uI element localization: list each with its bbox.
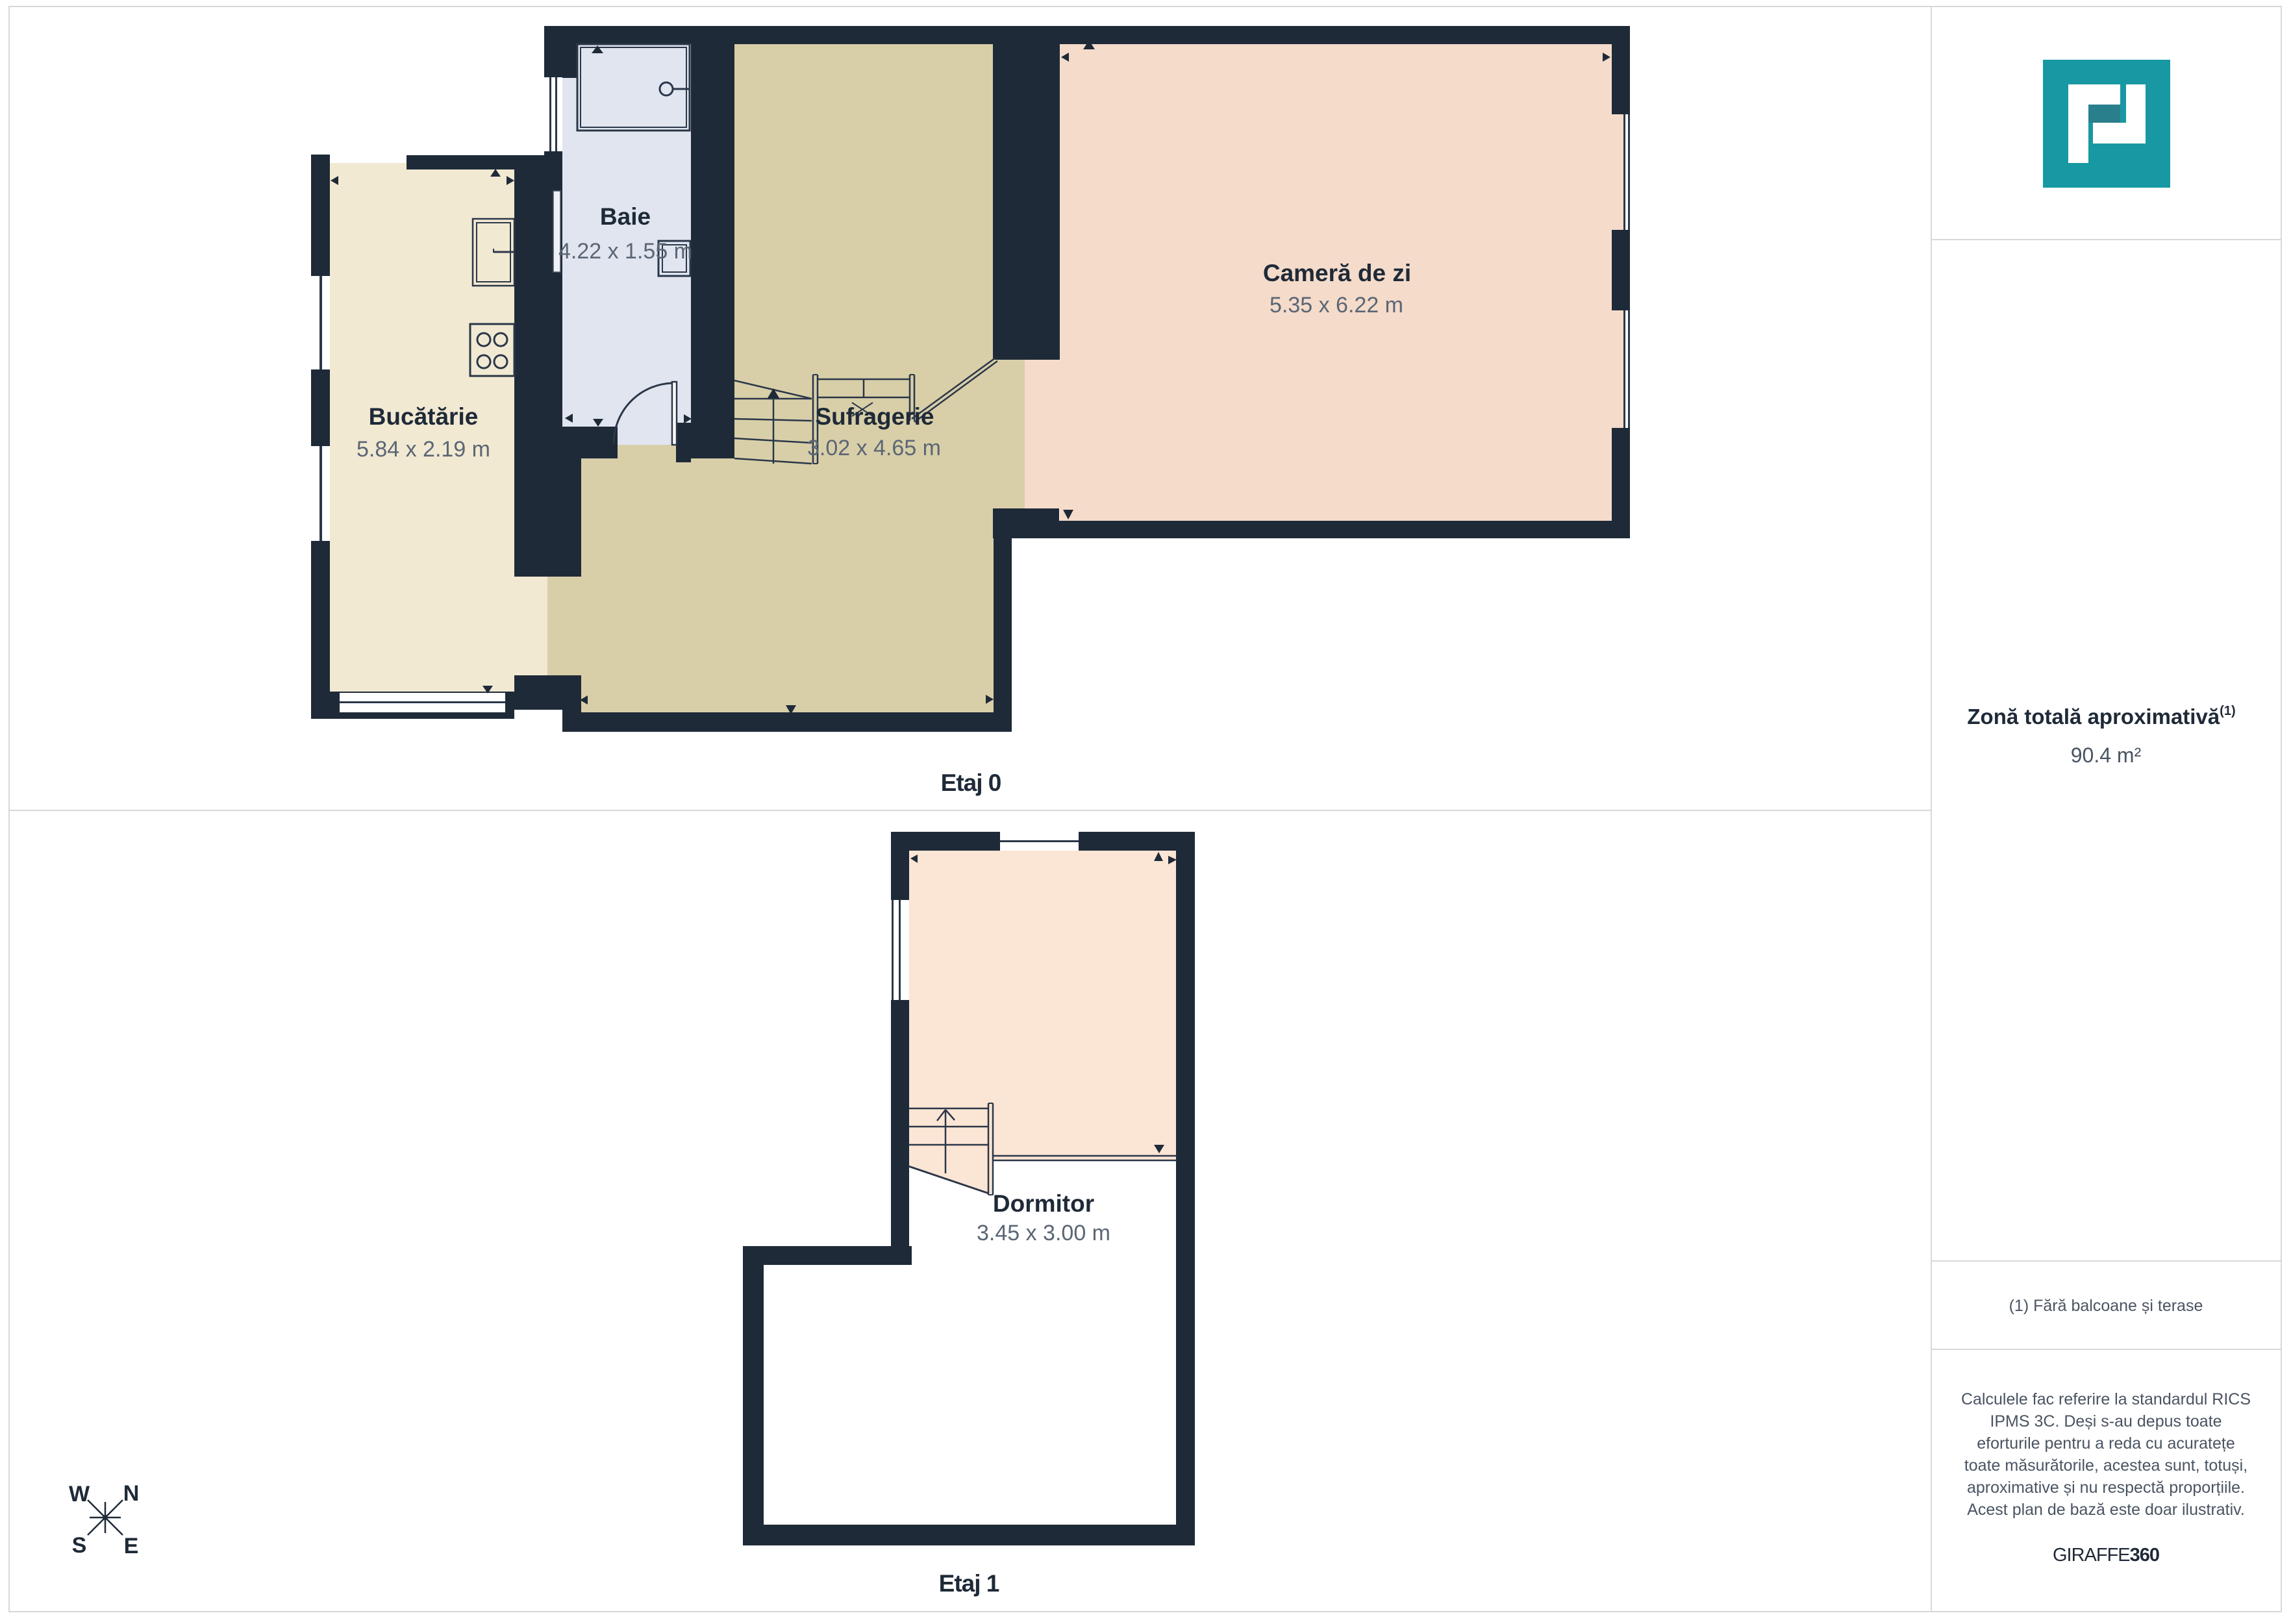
svg-text:Etaj 0: Etaj 0 [941, 769, 1001, 796]
svg-text:4.22 x 1.55 m: 4.22 x 1.55 m [558, 239, 692, 264]
svg-text:Bucătărie: Bucătărie [369, 403, 479, 430]
svg-text:eforturile pentru a reda cu ac: eforturile pentru a reda cu acuratețe [1977, 1434, 2235, 1453]
svg-text:W: W [69, 1482, 90, 1506]
svg-text:Cameră de zi: Cameră de zi [1263, 260, 1411, 286]
svg-text:5.35 x 6.22 m: 5.35 x 6.22 m [1270, 293, 1403, 318]
svg-text:N: N [123, 1481, 140, 1506]
svg-text:aproximative și nu respectă pr: aproximative și nu respectă proporțiile. [1967, 1479, 2245, 1497]
svg-text:Dormitor: Dormitor [993, 1190, 1094, 1217]
svg-text:E: E [124, 1534, 139, 1558]
svg-text:Baie: Baie [600, 203, 651, 230]
svg-text:Calculele fac referire la stan: Calculele fac referire la standardul RIC… [1961, 1390, 2251, 1408]
svg-text:GIRAFFE360: GIRAFFE360 [2053, 1545, 2159, 1566]
svg-text:Acest plan de bază este doar i: Acest plan de bază este doar ilustrativ. [1967, 1501, 2245, 1519]
svg-text:IPMS 3C. Deși s-au depus toate: IPMS 3C. Deși s-au depus toate [1990, 1412, 2222, 1430]
svg-text:5.84 x 2.19 m: 5.84 x 2.19 m [357, 437, 490, 462]
svg-text:Etaj 1: Etaj 1 [939, 1570, 999, 1597]
svg-text:(1) Fără balcoane și terase: (1) Fără balcoane și terase [2009, 1297, 2203, 1315]
svg-text:3.45 x 3.00 m: 3.45 x 3.00 m [977, 1221, 1110, 1245]
svg-text:S: S [72, 1533, 87, 1558]
svg-text:90.4 m²: 90.4 m² [2071, 743, 2142, 767]
svg-text:Zonă totală aproximativă(1): Zonă totală aproximativă(1) [1967, 704, 2235, 729]
svg-text:Sufragerie: Sufragerie [815, 403, 934, 430]
svg-text:toate măsurătorile, acestea su: toate măsurătorile, acestea sunt, totuși… [1964, 1456, 2247, 1475]
svg-text:3.02 x 4.65 m: 3.02 x 4.65 m [807, 436, 941, 460]
